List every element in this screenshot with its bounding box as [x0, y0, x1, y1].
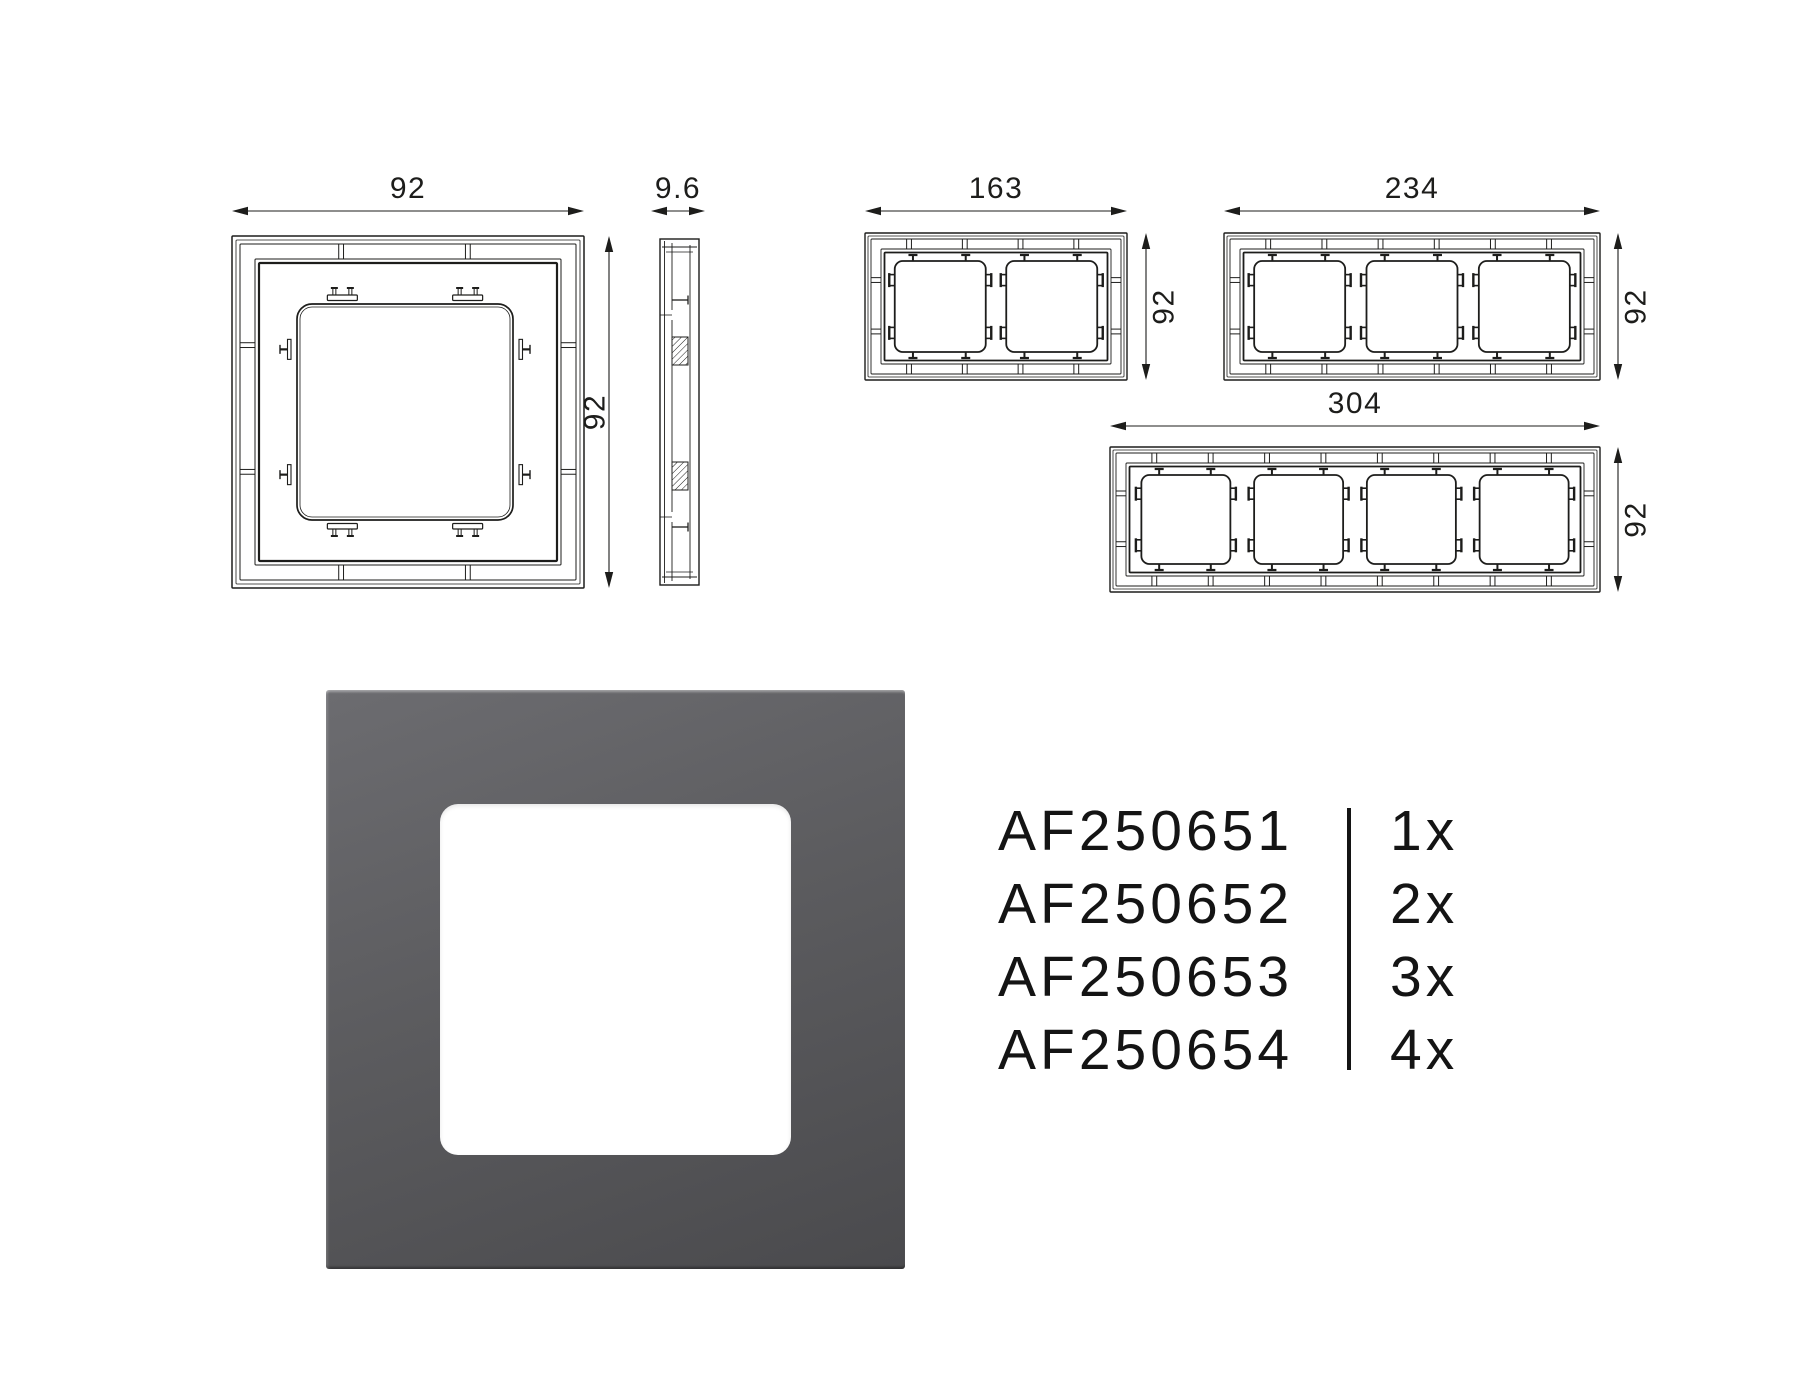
product-photo-window-cutout [440, 804, 791, 1155]
dimension-4gang-height: 92 [1620, 501, 1653, 537]
part-number: AF250654 [998, 1017, 1347, 1083]
dimension-1gang-width: 92 [390, 172, 426, 205]
datasheet-page: 9292 9.6 16392 23492 30492 AF2506511xAF2… [0, 0, 1800, 1400]
product-row: AF2506522x [998, 867, 1458, 940]
drawing-4gang-front-view: 30492 [1110, 387, 1653, 592]
drawing-2gang-front-view: 16392 [865, 172, 1181, 380]
list-divider-line [1347, 808, 1351, 1070]
dimension-1gang-height: 92 [579, 394, 612, 430]
gang-quantity-label: 1x [1390, 798, 1458, 864]
part-number: AF250652 [998, 871, 1347, 937]
dimension-3gang-height: 92 [1620, 288, 1653, 324]
drawing-3gang-front-view: 23492 [1224, 172, 1653, 380]
drawing-1gang-front-view: 9292 [232, 172, 613, 588]
product-row: AF2506533x [998, 940, 1458, 1013]
product-photo-1gang-frame [326, 690, 905, 1269]
dimension-3gang-width: 234 [1385, 172, 1440, 205]
dimension-2gang-width: 163 [969, 172, 1024, 205]
part-number-list: AF2506511xAF2506522xAF2506533xAF2506544x [998, 794, 1458, 1086]
drawing-1gang-side-view: 9.6 [651, 172, 705, 585]
product-row: AF2506544x [998, 1013, 1458, 1086]
part-number: AF250653 [998, 944, 1347, 1010]
product-row: AF2506511x [998, 794, 1458, 867]
gang-quantity-label: 3x [1390, 944, 1458, 1010]
dimension-4gang-width: 304 [1328, 387, 1383, 420]
technical-drawings: 9292 9.6 16392 23492 30492 [0, 0, 1800, 660]
dimension-1gang-thickness: 9.6 [655, 172, 701, 205]
gang-quantity-label: 4x [1390, 1017, 1458, 1083]
dimension-2gang-height: 92 [1148, 288, 1181, 324]
gang-quantity-label: 2x [1390, 871, 1458, 937]
part-number: AF250651 [998, 798, 1347, 864]
